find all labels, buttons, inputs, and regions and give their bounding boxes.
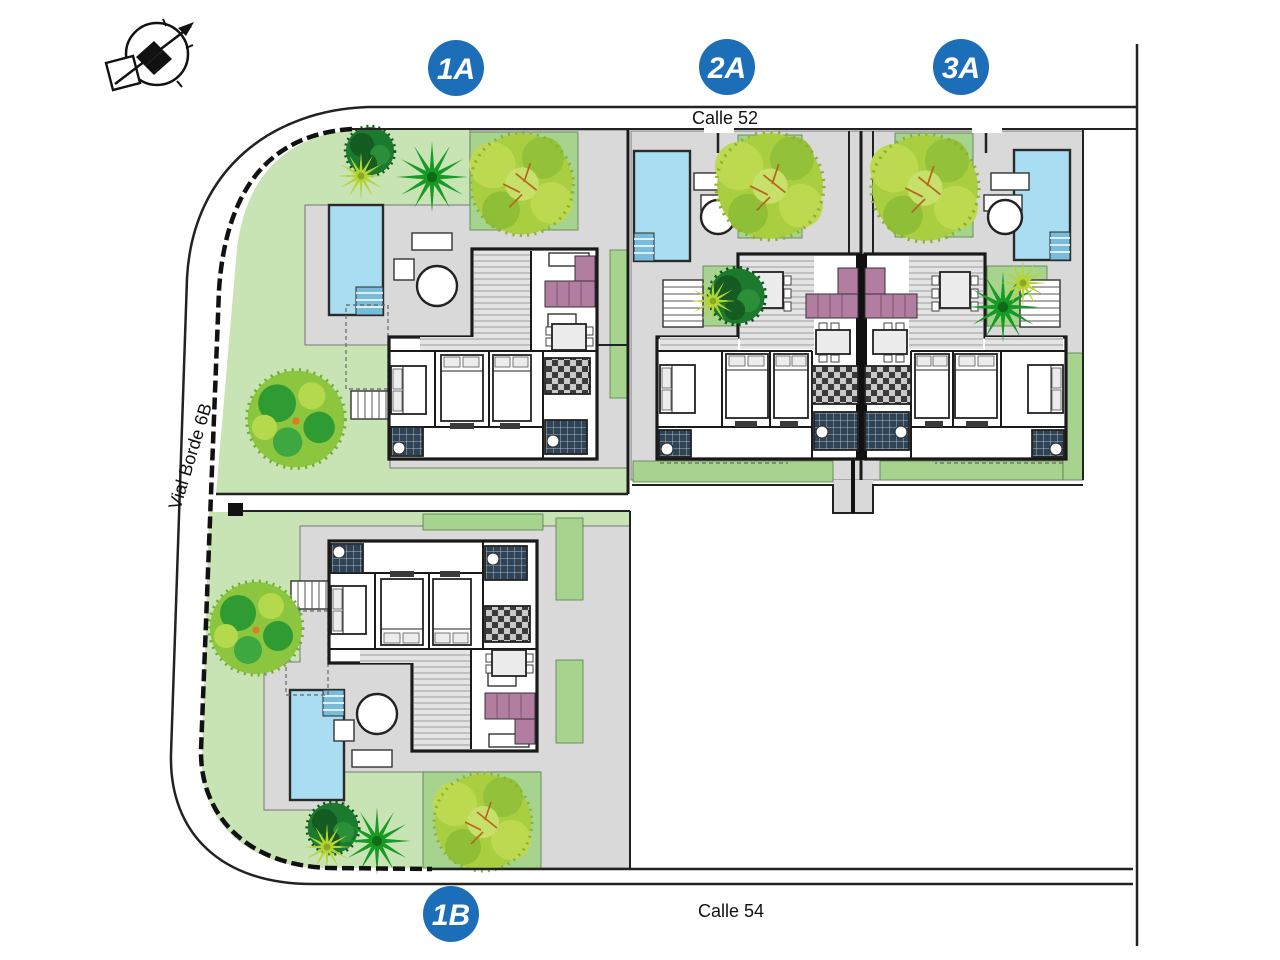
bed bbox=[660, 365, 695, 413]
site-plan-drawing: Calle 52 Calle 54 Vial Borde 6B 1A 2A 3A… bbox=[0, 0, 1280, 960]
entrance-stairs bbox=[351, 391, 390, 419]
svg-text:3A: 3A bbox=[942, 52, 980, 85]
entrance-stairs bbox=[663, 280, 703, 327]
bathroom bbox=[659, 430, 691, 457]
bed bbox=[774, 354, 808, 418]
bathroom bbox=[545, 420, 587, 454]
plot-badge-2a[interactable]: 2A bbox=[699, 39, 755, 95]
pool-1a bbox=[329, 205, 383, 315]
bed bbox=[441, 355, 483, 421]
site-plan-page: Calle 52 Calle 54 Vial Borde 6B 1A 2A 3A… bbox=[0, 0, 1280, 960]
bed bbox=[726, 354, 768, 418]
pool-1b bbox=[290, 690, 344, 800]
plot-badge-1a[interactable]: 1A bbox=[428, 40, 484, 96]
svg-text:1B: 1B bbox=[432, 899, 470, 932]
hall bbox=[660, 337, 738, 351]
pool-2a bbox=[634, 151, 690, 261]
dining-table bbox=[546, 324, 593, 350]
bathroom bbox=[814, 412, 858, 450]
bathroom bbox=[391, 427, 423, 456]
plot-badge-3a[interactable]: 3A bbox=[933, 39, 989, 95]
bed bbox=[493, 355, 531, 421]
svg-text:1A: 1A bbox=[437, 53, 475, 86]
street-calle-54-label: Calle 54 bbox=[698, 901, 764, 921]
kitchen bbox=[812, 366, 858, 404]
kitchen bbox=[545, 358, 590, 394]
covered-deck bbox=[474, 251, 530, 350]
hall bbox=[420, 337, 474, 351]
svg-text:2A: 2A bbox=[707, 52, 746, 85]
bed bbox=[391, 366, 426, 414]
street-calle-52-label: Calle 52 bbox=[692, 108, 758, 128]
plot-badge-1b[interactable]: 1B bbox=[423, 886, 479, 942]
